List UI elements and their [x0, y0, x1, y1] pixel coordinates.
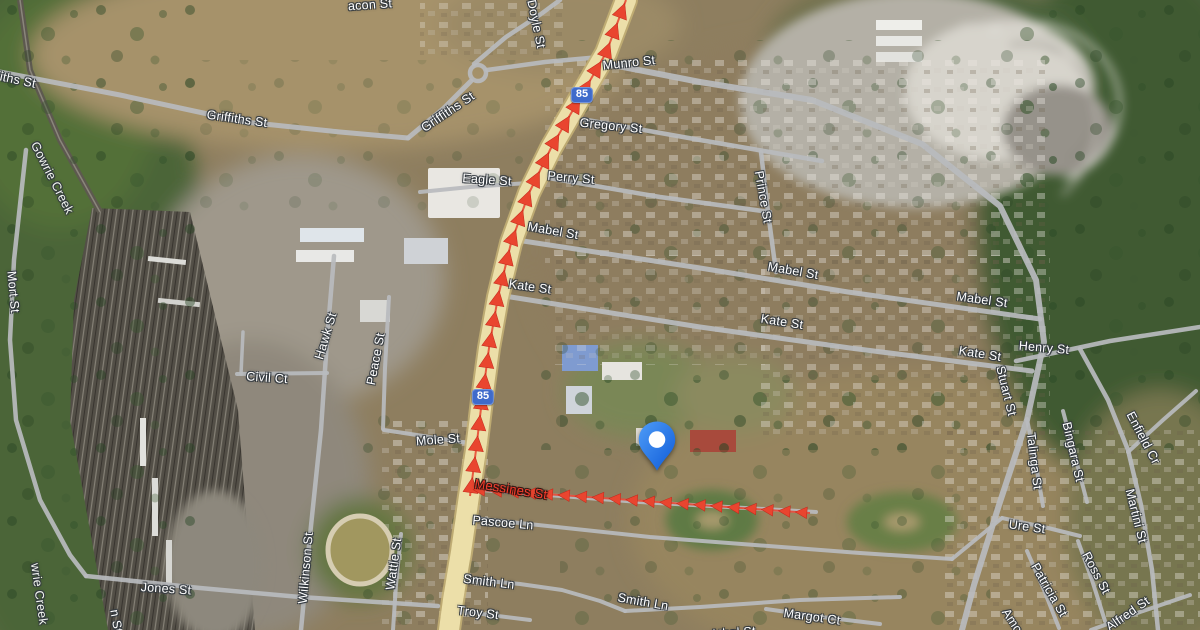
satellite-map-canvas[interactable]: acon Stfiths StGriffiths StGriffiths StG…	[0, 0, 1200, 630]
location-pin[interactable]	[638, 421, 676, 471]
route-85-shield: 85	[571, 87, 593, 103]
route-85-shield: 85	[472, 389, 494, 405]
map-overlays: 8585	[0, 0, 1200, 630]
pin-center-dot	[649, 431, 666, 448]
